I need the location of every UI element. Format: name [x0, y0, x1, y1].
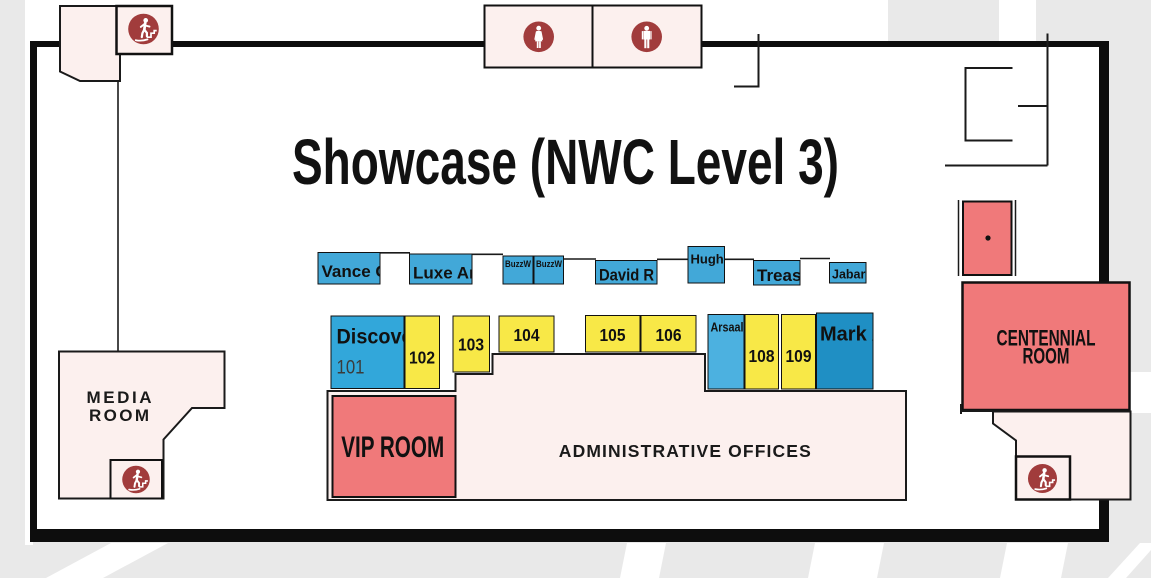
svg-text:ADMINISTRATIVE OFFICES: ADMINISTRATIVE OFFICES: [559, 441, 811, 461]
svg-text:MEDIA: MEDIA: [87, 388, 152, 407]
svg-text:Vance G: Vance G: [322, 262, 389, 281]
svg-text:BuzzW: BuzzW: [536, 259, 562, 270]
svg-text:ROOM: ROOM: [1023, 344, 1070, 369]
svg-text:Luxe An: Luxe An: [413, 264, 479, 283]
svg-text:David R: David R: [599, 266, 654, 285]
svg-text:VIP ROOM: VIP ROOM: [341, 431, 444, 464]
svg-text:BuzzW: BuzzW: [505, 259, 531, 270]
svg-text:103: 103: [458, 335, 484, 355]
svg-text:108: 108: [749, 346, 775, 366]
svg-text:Jabari: Jabari: [832, 268, 869, 282]
svg-text:Discove: Discove: [337, 326, 413, 349]
svg-text:104: 104: [514, 325, 540, 345]
svg-text:105: 105: [600, 325, 626, 345]
svg-text:106: 106: [656, 325, 682, 345]
svg-text:109: 109: [786, 346, 812, 366]
svg-text:Showcase (NWC Level 3): Showcase (NWC Level 3): [292, 126, 839, 198]
svg-text:Arsaal: Arsaal: [711, 321, 744, 335]
svg-text:102: 102: [409, 348, 435, 368]
svg-text:ROOM: ROOM: [89, 406, 149, 425]
svg-text:Hughe: Hughe: [691, 252, 731, 267]
svg-text:101: 101: [337, 357, 365, 379]
